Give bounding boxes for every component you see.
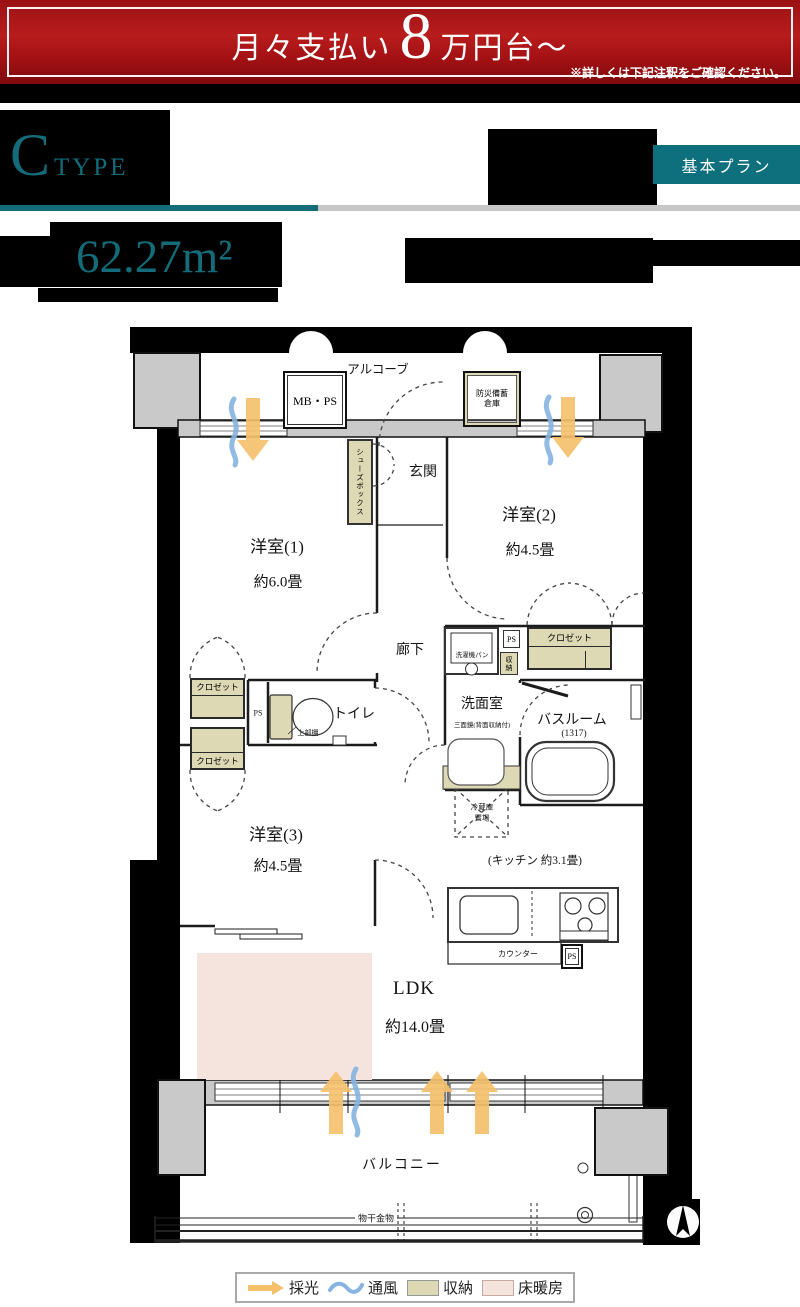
type-label-box: C TYPE [0,110,170,205]
balcony-railing [155,1203,643,1243]
closet-room3: クロゼット [190,727,245,770]
black-divider [0,84,800,103]
banner-text: 月々支払い 8 万円台〜 [0,0,800,74]
banner-note: ※詳しくは下記注釈をご確認ください。 [570,64,786,81]
legend-daylight: 採光 [247,1277,319,1298]
type-word: TYPE [54,154,129,182]
ps-box-utility: PS [503,630,520,648]
closet-room2-label: クロゼット [529,631,610,647]
upper-shelf-label: 上部棚 [298,728,319,738]
price-banner: 月々支払い 8 万円台〜 ※詳しくは下記注釈をご確認ください。 [0,0,800,84]
bathroom-label: バスルーム [537,709,607,729]
room2-label: 洋室(2) [502,501,556,526]
mirror-label: 三面鏡(背面収納付) [454,719,510,729]
closet-room3-label: クロゼット [192,752,243,767]
banner-suffix: 万円台〜 [441,12,569,86]
teal-rule [0,205,318,211]
redacted-block-1 [488,129,657,205]
banner-amount: 8 [400,0,433,74]
closet-room2: クロゼット [527,627,612,670]
room3-label: 洋室(3) [249,821,303,846]
legend-storage-label: 収納 [443,1277,473,1298]
redacted-block-2 [38,288,278,302]
mbps-label: MB・PS [293,392,337,409]
closet-room1: クロゼット [190,678,245,719]
legend-floor-heating-label: 床暖房 [518,1277,563,1298]
hallway-label: 廊下 [396,639,424,659]
shoe-box-label: シューズボックス [355,448,366,516]
bathtub [526,685,641,801]
floorplan: MB・PS 防災備蓄 倉庫 シューズボックス クロゼット クロゼット クロゼット… [130,325,700,1245]
disaster-storage-line2: 倉庫 [484,399,500,409]
room1-label: 洋室(1) [250,533,304,558]
ldk-size: 約14.0畳 [385,1013,445,1037]
redacted-block-3 [405,238,653,283]
closet-room1-label: クロゼット [192,681,243,696]
toilet-label: トイレ [333,703,375,723]
redacted-block-4 [653,240,800,266]
bathroom-size: (1317) [561,729,586,739]
disaster-storage-box: 防災備蓄 倉庫 [463,371,521,427]
storage-box-small: 収納 [500,652,518,675]
laundry-hardware-label: 物干金物 [355,1212,397,1225]
ldk-label: LDK [393,978,435,1000]
window-room1 [200,421,287,436]
fridge-label-2: 置場 [475,813,490,824]
room2-size: 約4.5畳 [506,539,555,560]
alcove-label: アルコーブ [347,359,408,378]
window-room2 [517,421,593,436]
banner-prefix: 月々支払い [232,12,392,86]
wind-wave-icon [328,1281,364,1295]
floor-heating-area [197,953,372,1080]
room1-size: 約6.0畳 [254,571,303,592]
daylight-arrow-icon [247,1281,285,1295]
closet-divider [585,651,586,670]
area-notch [0,222,50,236]
ps-label-toilet: PS [254,709,263,718]
plan-badge-button[interactable]: 基本プラン [653,145,800,184]
compass-north-icon [666,1199,700,1245]
counter-label: カウンター [498,949,538,960]
washroom-label: 洗面室 [461,693,503,713]
floor-area-value: 62.27m² [76,228,232,286]
legend-storage: 収納 [407,1277,473,1298]
shoe-box: シューズボックス [347,439,373,525]
type-letter: C [10,110,50,200]
vanity-fixture [443,739,520,789]
legend-ventilation-label: 通風 [368,1277,398,1298]
legend: 採光 通風 収納 床暖房 [235,1272,575,1303]
disaster-storage-line1: 防災備蓄 [476,389,508,399]
gray-rule [318,205,800,211]
legend-ventilation: 通風 [328,1277,398,1298]
entrance-label: 玄関 [409,461,437,481]
floor-heating-swatch [482,1280,514,1296]
room3-size: 約4.5畳 [254,855,303,876]
legend-daylight-label: 採光 [289,1277,319,1298]
ps-box-kitchen: PS [561,944,583,969]
storage-swatch [407,1280,439,1296]
washer-pan-label: 洗濯機パン [456,649,489,659]
mbps-box: MB・PS [283,371,347,429]
kitchen-size-label: (キッチン 約3.1畳) [488,852,582,868]
balcony-label: バルコニー [362,1154,442,1174]
fridge-label-1: 冷蔵庫 [471,802,494,813]
legend-floor-heating: 床暖房 [482,1277,563,1298]
